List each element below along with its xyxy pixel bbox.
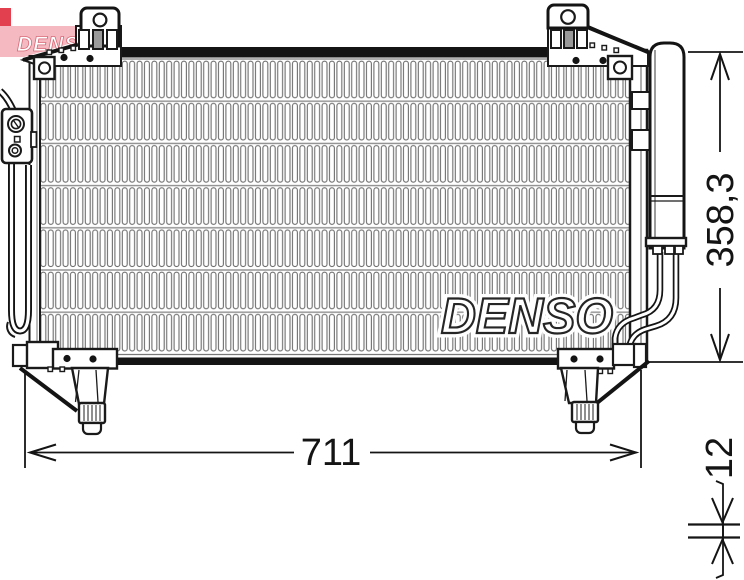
bottom-plate	[40, 355, 646, 366]
fitting-square-hole	[15, 137, 21, 143]
bracket-foot-hole	[614, 62, 626, 74]
fitting-port-small	[9, 145, 21, 157]
grommet-pin	[79, 403, 105, 434]
watermark-text: DENSO	[441, 288, 613, 344]
inlet-fitting-block	[2, 109, 37, 163]
dimension-height-label: 358,3	[700, 172, 742, 267]
dimension-width-label: 711	[301, 432, 362, 474]
drier-clamp-lower	[632, 130, 650, 150]
condenser-drawing: DENSO	[0, 0, 744, 580]
bracket-hole	[94, 14, 107, 27]
technical-drawing-page: DENSO	[0, 0, 744, 580]
dimension-depth-label: 12	[699, 437, 741, 479]
grommet-pin	[572, 402, 598, 433]
denso-watermark: DENSO DENSO	[441, 288, 613, 344]
bolt	[89, 355, 96, 362]
bolt	[60, 54, 67, 61]
bracket-foot-hole	[39, 62, 50, 73]
bolt	[596, 355, 603, 362]
mount-bracket-bottom-right	[558, 344, 649, 433]
fitting-tab	[31, 132, 37, 147]
header-end-step	[613, 344, 635, 365]
top-plate	[116, 47, 548, 58]
bracket-slots	[79, 30, 117, 49]
bolt	[572, 57, 579, 64]
drier-clamp-upper	[632, 92, 650, 109]
header-end-cap	[13, 345, 28, 366]
bracket-slots	[551, 30, 587, 48]
bolt	[86, 55, 93, 62]
bracket-hole	[561, 10, 575, 24]
bolt	[599, 57, 606, 64]
bolt	[570, 355, 577, 362]
bolt	[63, 355, 70, 362]
drier-flange	[646, 238, 686, 246]
dimension-depth	[688, 481, 740, 578]
drier-pipe-stubs	[653, 246, 683, 254]
